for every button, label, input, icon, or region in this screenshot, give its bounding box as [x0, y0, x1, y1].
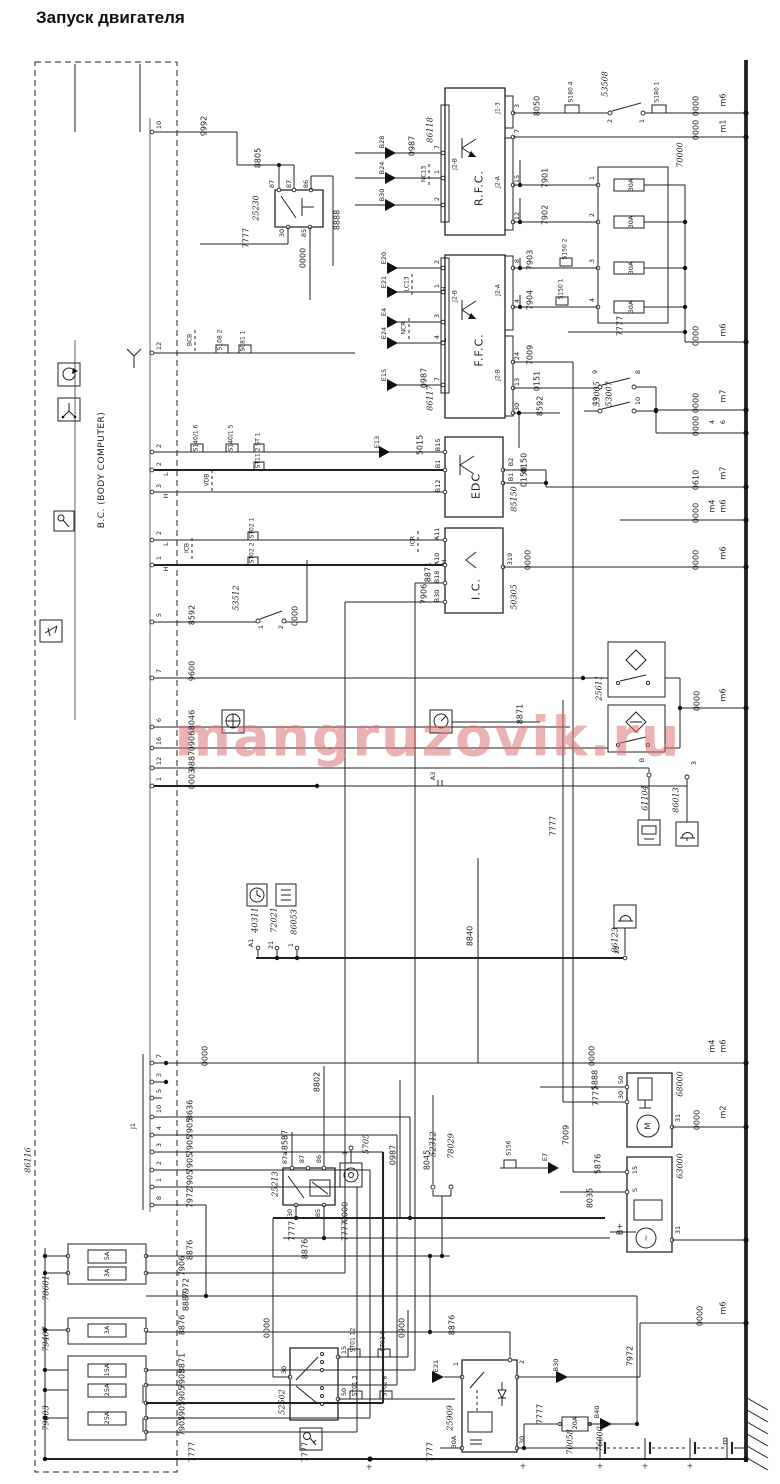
label-2: 2	[277, 625, 285, 629]
label-8: 8	[155, 1196, 163, 1200]
label-BCB: BCB	[187, 334, 194, 346]
label-LC13: LC13	[404, 276, 411, 291]
switch-53508	[513, 103, 746, 137]
label-0000: 0000	[692, 120, 701, 140]
label-78601: 78601	[42, 1275, 51, 1300]
label-7777: 7777	[341, 1221, 350, 1241]
label-30: 30	[513, 403, 521, 411]
label-E7: E7	[541, 1153, 549, 1161]
label-79407: 79407	[42, 1326, 51, 1351]
label-8: 8	[634, 370, 642, 374]
rotation-indicator-icon	[58, 363, 80, 386]
label-2: 2	[155, 444, 163, 448]
label-87: 87	[298, 1155, 306, 1163]
label-16: 16	[155, 737, 163, 745]
label-7905: 7905	[178, 1416, 187, 1436]
label-ST02 8: ST02 8	[380, 1331, 387, 1352]
label-m6: m6	[719, 1302, 728, 1315]
label-A11: A11	[433, 528, 441, 541]
label-5: 5	[155, 613, 163, 617]
label-19: 19	[591, 397, 599, 405]
label-B: B	[638, 758, 646, 762]
label-63000: 63000	[676, 1153, 685, 1178]
label-S150 2: S150 2	[562, 239, 569, 260]
label-E20: E20	[380, 252, 388, 264]
label-70000: 70000	[676, 142, 685, 167]
label-m4: m4	[708, 500, 717, 513]
fuse-box-79407	[43, 1318, 148, 1344]
label-21: 21	[613, 946, 621, 954]
label-8805: 8805	[254, 148, 263, 168]
label-8046: 8046	[188, 710, 197, 730]
label-B40: B40	[593, 1406, 601, 1419]
label-7: 7	[155, 1054, 163, 1058]
label-J2-A: J2-A	[495, 176, 502, 188]
label-8876: 8876	[178, 1315, 187, 1335]
label-50: 50	[617, 1076, 625, 1084]
label-0000: 0000	[201, 1046, 210, 1066]
indicator-61104	[638, 820, 660, 845]
label-10: 10	[155, 121, 163, 129]
label-S140/1 5: S140/1 5	[228, 425, 235, 452]
label-7777: 7777	[616, 316, 625, 336]
label-0987: 0987	[408, 136, 417, 156]
label-5876: 5876	[594, 1154, 603, 1174]
label-ST 1: ST 1	[255, 432, 262, 445]
label-+: +	[597, 1462, 604, 1471]
label-0000: 0000	[524, 550, 533, 570]
label-H: H	[440, 287, 448, 292]
label-ST01 12: ST01 12	[350, 1328, 357, 1353]
label-6: 6	[719, 420, 727, 424]
label-30: 30	[286, 1209, 294, 1217]
label-E21: E21	[380, 276, 388, 288]
label-0610: 0610	[692, 470, 701, 490]
label-L: L	[162, 472, 170, 476]
label-m4: m4	[708, 1040, 717, 1053]
label-7904: 7904	[526, 290, 535, 310]
label-86118: 86118	[426, 117, 435, 142]
label-15: 15	[631, 1166, 639, 1174]
label-0900: 0900	[398, 1318, 407, 1338]
label-0000: 0000	[299, 248, 308, 268]
label-B28: B28	[378, 136, 386, 149]
label-53508: 53508	[601, 71, 610, 96]
label-7: 7	[433, 377, 441, 381]
label-70058: 70058	[566, 1429, 575, 1454]
label-m1: m1	[719, 120, 728, 133]
label-2: 2	[518, 1360, 526, 1364]
fuse-box-70000	[513, 167, 746, 342]
label-0987: 0987	[389, 1145, 398, 1165]
label-30A: 30A	[450, 1436, 458, 1449]
label-M: M	[644, 1123, 653, 1130]
label-7901: 7901	[541, 168, 550, 188]
label-30: 30	[280, 1366, 288, 1374]
label-+: +	[520, 1462, 527, 1471]
label-10: 10	[634, 397, 642, 405]
label-1: 1	[287, 943, 295, 947]
label-3: 3	[155, 1073, 163, 1077]
label-5: 5	[155, 1089, 163, 1093]
label-9992: 9992	[200, 116, 209, 136]
label-B+: B+	[616, 1223, 625, 1235]
edc-block-85150	[152, 437, 746, 517]
label-ST02 2: ST02 2	[249, 543, 256, 564]
label-7906: 7906	[178, 1256, 187, 1276]
label-1: 1	[433, 170, 441, 174]
label-87: 87	[268, 180, 276, 188]
label-B1: B1	[434, 460, 442, 469]
label-B2: B2	[507, 458, 515, 467]
label-13: 13	[513, 378, 521, 386]
label-9: 9	[591, 370, 599, 374]
label-0151: 0151	[533, 371, 542, 391]
label-S108 2: S108 2	[217, 330, 224, 351]
label-50305: 50305	[510, 584, 519, 609]
label-15A: 15A	[103, 1364, 111, 1377]
label-S156: S156	[506, 1140, 513, 1155]
label-ICB: ICB	[184, 543, 191, 553]
label-7777: 7777	[288, 1221, 297, 1241]
label-7777: 7777	[549, 816, 558, 836]
label-R.F.C.: R.F.C.	[473, 170, 486, 206]
antenna-icon	[127, 349, 141, 368]
label-0000: 0000	[692, 393, 701, 413]
label-L: L	[162, 542, 170, 546]
label-3: 3	[588, 259, 596, 263]
label-VDB: VDB	[204, 474, 211, 487]
label-78029: 78029	[447, 1133, 456, 1158]
label-7009: 7009	[526, 345, 535, 365]
label-2: 2	[155, 462, 163, 466]
label-B30: B30	[433, 590, 441, 603]
label-m7: m7	[719, 467, 728, 480]
label-0000: 0000	[696, 1306, 705, 1326]
hand-icon	[40, 620, 62, 642]
label-68000: 68000	[676, 1071, 685, 1096]
label-B24: B24	[378, 162, 386, 175]
label-15: 15	[340, 1346, 348, 1354]
label-m2: m2	[719, 1106, 728, 1119]
label-9600: 9600	[188, 661, 197, 681]
label-J1: J1	[129, 1123, 137, 1129]
label-J2-B: J2-B	[495, 369, 502, 381]
label-J1-3: J1-3	[495, 102, 502, 114]
ignition-switch-52502	[273, 1310, 455, 1450]
label-+: +	[642, 1462, 649, 1471]
label-7777: 7777	[301, 1442, 310, 1462]
label-S150 1: S150 1	[558, 279, 565, 300]
label-4: 4	[708, 420, 716, 424]
label-S140/1 6: S140/1 6	[193, 425, 200, 452]
label-52502: 52502	[278, 1389, 287, 1414]
label-8050: 8050	[533, 96, 542, 116]
label-ICR: ICR	[410, 536, 417, 546]
fuse-output-wires	[146, 1254, 637, 1432]
label-4: 4	[588, 298, 596, 302]
ic-block-50305	[152, 528, 746, 1370]
label-L: L	[440, 338, 448, 342]
label-1: 1	[155, 556, 163, 560]
label-J2-B: J2-B	[452, 290, 459, 302]
label-2: 2	[433, 197, 441, 201]
label-0000: 0000	[692, 503, 701, 523]
label-m6: m6	[719, 94, 728, 107]
indicator-icons	[40, 363, 80, 642]
label-31: 31	[674, 1114, 682, 1122]
label-m: m	[721, 1437, 730, 1445]
label-ST11 2: ST11 2	[255, 448, 262, 469]
label-B18: B18	[433, 571, 441, 584]
label-3: 3	[155, 1143, 163, 1147]
label-7777: 7777	[592, 1086, 601, 1106]
label-B15: B15	[434, 439, 442, 452]
label-A3: A3	[429, 772, 437, 781]
label-1: 1	[341, 1151, 349, 1155]
label-85150: 85150	[510, 486, 519, 511]
label-m6: m6	[719, 324, 728, 337]
label-8888: 8888	[333, 210, 342, 230]
label-NCR: NCR	[401, 322, 408, 335]
label-3: 3	[155, 484, 163, 488]
label-25909: 25909	[446, 1405, 455, 1430]
label-8587: 8587	[281, 1130, 290, 1150]
label-ST02 8: ST02 8	[382, 1376, 389, 1397]
label-J2-A: J2-A	[495, 284, 502, 296]
label-E24: E24	[380, 327, 388, 339]
label-50: 50	[340, 1388, 348, 1396]
label-0000: 0000	[692, 326, 701, 346]
label-m6: m6	[719, 547, 728, 560]
label-4: 4	[155, 1126, 163, 1130]
label-79603: 79603	[42, 1405, 51, 1430]
label-7: 7	[513, 129, 521, 133]
label-ST02 1: ST02 1	[249, 518, 256, 539]
label-0906: 0906	[188, 731, 197, 751]
label-7972: 7972	[186, 1188, 195, 1208]
label-20A: 20A	[571, 1417, 579, 1430]
label-8840: 8840	[466, 926, 475, 946]
label-EDC: EDC	[470, 473, 483, 499]
label-25A: 25A	[103, 1384, 111, 1397]
label-8876: 8876	[186, 1240, 195, 1260]
label-86116: 86116	[24, 1147, 33, 1172]
label-H: H	[162, 567, 170, 572]
label-+: +	[687, 1462, 694, 1471]
label-3: 3	[433, 314, 441, 318]
label-30: 30	[278, 229, 286, 237]
label-7009: 7009	[562, 1125, 571, 1145]
fuse-box-78601	[43, 1244, 148, 1284]
label-85: 85	[314, 1209, 322, 1217]
label-8592: 8592	[188, 605, 197, 625]
label-3: 3	[513, 104, 521, 108]
battery-bank-76000	[524, 1438, 746, 1458]
label-8802: 8802	[313, 1072, 322, 1092]
label-0000: 0000	[692, 416, 701, 436]
label-m6: m6	[719, 1040, 728, 1053]
label-m6: m6	[719, 689, 728, 702]
label-2: 2	[606, 119, 614, 123]
label-0000: 0000	[692, 96, 701, 116]
label-25230: 25230	[252, 195, 261, 220]
label-0003: 0003	[188, 769, 197, 789]
label-72021: 72021	[270, 907, 279, 932]
label-319: 319	[506, 553, 514, 565]
fuse-box-79603	[43, 1356, 148, 1440]
watermark: mangruzovik.ru	[175, 706, 682, 769]
label-30: 30	[518, 1436, 526, 1444]
label-3: 3	[690, 761, 698, 765]
label-6: 6	[155, 718, 163, 722]
label-0000: 0000	[693, 1110, 702, 1130]
label-7902: 7902	[541, 205, 550, 225]
label-30A: 30A	[627, 301, 635, 314]
label-85: 85	[300, 229, 308, 237]
j1-rows	[152, 1061, 746, 1432]
label-0000: 0000	[692, 550, 701, 570]
label-7777: 7777	[188, 1442, 197, 1462]
label-m6: m6	[719, 500, 728, 513]
label-B.C. (BODY COMPUTER): B.C. (BODY COMPUTER)	[97, 412, 107, 529]
bell-86013	[676, 822, 698, 846]
relay-symbol	[462, 138, 476, 158]
label-61104: 61104	[641, 785, 650, 810]
label-E21: E21	[432, 1360, 440, 1372]
label-ST01 3: ST01 3	[352, 1376, 359, 1397]
label-m7: m7	[719, 390, 728, 403]
label-10: 10	[155, 1105, 163, 1113]
label-8876: 8876	[448, 1315, 457, 1335]
label-E4: E4	[380, 308, 388, 316]
label-86117: 86117	[426, 385, 435, 410]
label-40311: 40311	[251, 907, 260, 932]
label-25611: 25611	[595, 675, 604, 700]
label-30A: 30A	[627, 179, 635, 192]
label-E15: E15	[380, 369, 388, 381]
label-30: 30	[617, 1091, 625, 1099]
label-76000: 76000	[596, 1426, 605, 1451]
label-12: 12	[155, 342, 163, 350]
label-S180 1: S180 1	[654, 82, 661, 103]
label-15: 15	[513, 175, 521, 183]
switch-53512	[152, 560, 307, 623]
label-7903: 7903	[526, 250, 535, 270]
label-B1: B1	[507, 473, 515, 482]
label-30A: 30A	[627, 216, 635, 229]
bc-pins	[150, 130, 154, 1207]
starter-68000	[540, 1073, 746, 1147]
label-8876: 8876	[301, 1239, 310, 1259]
label-25213: 25213	[271, 1171, 280, 1196]
label-8: 8	[513, 259, 521, 263]
indicator-group-40311	[247, 884, 625, 960]
label-7: 7	[433, 145, 441, 149]
label-0000: 0000	[263, 1318, 272, 1338]
label-1: 1	[155, 777, 163, 781]
label-53512: 53512	[232, 585, 241, 610]
label-30A: 30A	[627, 262, 635, 275]
label-86053: 86053	[290, 909, 299, 934]
label-3A: 3A	[103, 1326, 111, 1335]
label-7972: 7972	[626, 1346, 635, 1366]
body-computer-enclosure	[35, 62, 177, 1472]
label-8887: 8887	[182, 1291, 191, 1311]
label-S: S	[631, 1188, 639, 1192]
label-S081 1: S081 1	[240, 331, 247, 352]
label-0000: 0000	[291, 606, 300, 626]
label-7777: 7777	[242, 228, 251, 248]
key-icon	[54, 511, 74, 531]
label-I.C.: I.C.	[470, 578, 483, 600]
label-87: 87	[285, 180, 293, 188]
label-1: 1	[257, 625, 265, 629]
label-24: 24	[513, 352, 521, 360]
bottom-ground-line	[43, 1456, 746, 1461]
label-31: 31	[674, 1226, 682, 1234]
label-0150: 0150	[520, 467, 529, 487]
ground-bus	[746, 60, 768, 1470]
label-4: 4	[513, 299, 521, 303]
label-0000: 0000	[341, 1202, 350, 1222]
label-7777: 7777	[536, 1404, 545, 1424]
label-7: 7	[155, 669, 163, 673]
label-1: 1	[588, 176, 596, 180]
label-25A: 25A	[103, 1412, 111, 1425]
label-8871: 8871	[424, 562, 433, 582]
label-7777: 7777	[426, 1442, 435, 1462]
label-5A: 5A	[103, 1252, 111, 1261]
label-1: 1	[155, 1178, 163, 1182]
label-8035: 8035	[586, 1188, 595, 1208]
label-86: 86	[315, 1155, 323, 1163]
label-1: 1	[452, 1362, 460, 1366]
label-21: 21	[267, 941, 275, 949]
label-1: 1	[638, 119, 646, 123]
label-12: 12	[513, 212, 521, 220]
label-86: 86	[302, 180, 310, 188]
label-3A: 3A	[103, 1269, 111, 1278]
label-0000: 0000	[588, 1046, 597, 1066]
label-~: ~	[642, 1235, 651, 1242]
label-12: 12	[155, 757, 163, 765]
label-2: 2	[155, 531, 163, 535]
label-2: 2	[155, 1161, 163, 1165]
relay-25230	[152, 132, 333, 300]
label-53007: 53007	[605, 381, 614, 406]
label-H: H	[440, 560, 448, 565]
label-2: 2	[433, 260, 441, 264]
label-87a: 87a	[281, 1152, 289, 1164]
label-B30: B30	[552, 1359, 560, 1372]
relay-symbol	[462, 300, 476, 320]
label-8871: 8871	[516, 704, 525, 724]
label-H: H	[162, 494, 170, 499]
label-A1: A1	[247, 939, 255, 948]
axle-schematic-icon	[58, 398, 80, 421]
label-86013: 86013	[672, 787, 681, 812]
label-7906: 7906	[420, 584, 429, 604]
label-B30: B30	[378, 189, 386, 202]
bc-connector-rows	[152, 164, 429, 565]
label-F.F.C.: F.F.C.	[473, 333, 486, 366]
label-E13: E13	[373, 436, 381, 448]
glow-control-25909	[432, 1323, 746, 1452]
label-B12: B12	[434, 480, 442, 493]
lt-symbol	[466, 552, 476, 568]
label-0000: 0000	[693, 691, 702, 711]
